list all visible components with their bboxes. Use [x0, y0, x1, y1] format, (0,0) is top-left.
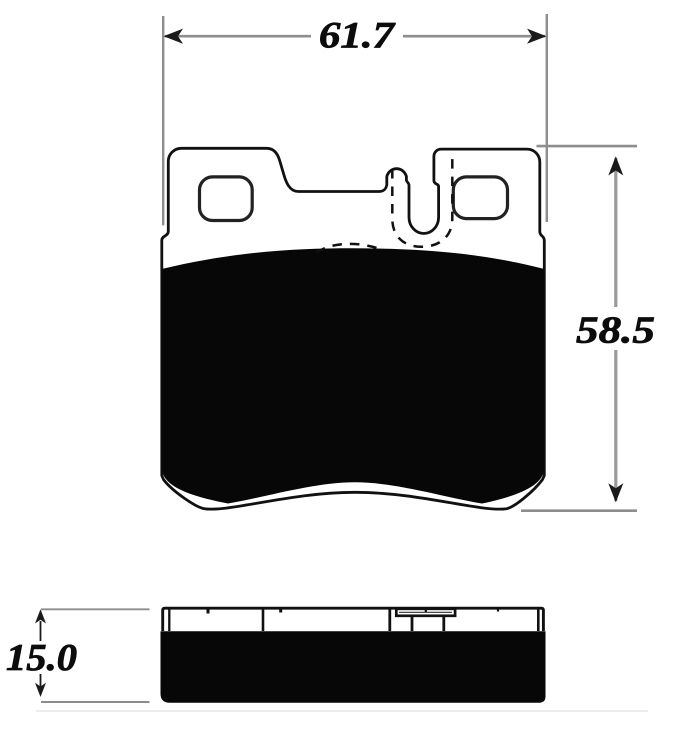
svg-text:61.7: 61.7 [319, 16, 396, 57]
svg-text:15.0: 15.0 [6, 637, 77, 679]
svg-text:58.5: 58.5 [576, 310, 655, 352]
